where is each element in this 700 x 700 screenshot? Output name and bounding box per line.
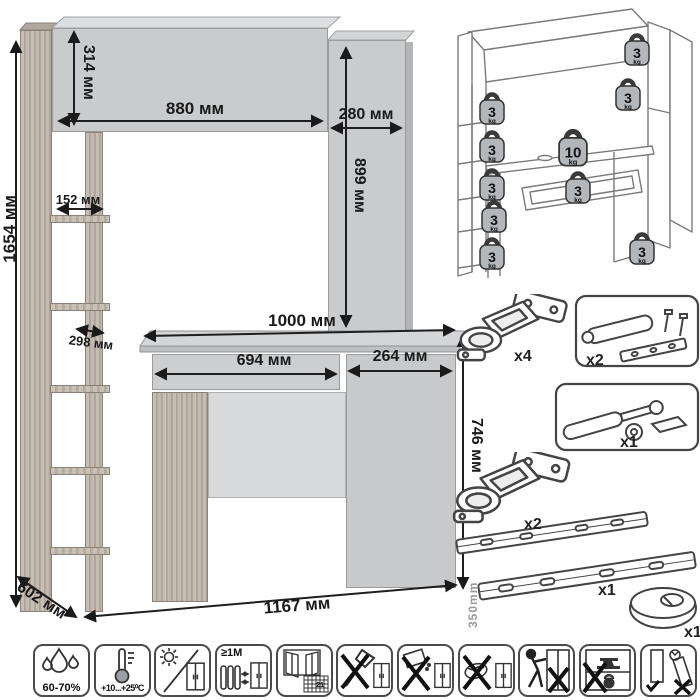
load-badge-pedestal: 3kg bbox=[627, 228, 657, 266]
svg-text:kg: kg bbox=[633, 59, 641, 66]
dim-total-height: 1654 мм bbox=[0, 195, 20, 263]
load-badge-desktop: 10kg bbox=[555, 124, 591, 168]
top-cabinet-top-face bbox=[328, 31, 414, 40]
slides-qty: x1 bbox=[598, 582, 616, 600]
hardware-hinge-1 bbox=[458, 290, 568, 360]
svg-text:kg: kg bbox=[488, 118, 496, 125]
no-overloading-icon bbox=[579, 644, 636, 697]
slash-line bbox=[164, 650, 198, 692]
svg-text:kg: kg bbox=[488, 263, 496, 270]
x-mark-icon bbox=[584, 663, 606, 692]
gas-lift-qty: x1 bbox=[620, 434, 638, 452]
grommet-qty: x1 bbox=[684, 624, 700, 642]
sun-icon bbox=[160, 648, 178, 666]
temperature-range: +10...+25⁰C bbox=[96, 683, 149, 694]
no-wet-cleaning-icon bbox=[458, 644, 515, 697]
sketch-open-door bbox=[670, 30, 692, 232]
load-badge-left-shelf-5: 3kg bbox=[477, 233, 507, 271]
ventilation-icon: 21 bbox=[276, 644, 333, 697]
humidity-icon: 60-70% bbox=[33, 644, 90, 697]
no-abrasives-icon bbox=[397, 644, 454, 697]
arrow-shelf-depth bbox=[77, 329, 103, 333]
dim-cabinet-height: 899 мм bbox=[350, 158, 368, 213]
x-mark-icon bbox=[675, 680, 690, 694]
kettlebell-icon bbox=[604, 675, 615, 688]
dim-hutch-height: 314 мм bbox=[79, 45, 97, 100]
distance-arrows-icon bbox=[242, 673, 248, 684]
wardrobe-icon bbox=[187, 663, 204, 690]
load-badge-left-shelf-1: 3kg bbox=[477, 88, 507, 126]
radiator-icon bbox=[221, 666, 240, 689]
x-mark-icon bbox=[342, 655, 368, 688]
dim-pedestal-width: 264 мм bbox=[364, 348, 436, 366]
dim-desk-height: 746 мм bbox=[467, 418, 485, 473]
hutch-top-face bbox=[52, 17, 340, 28]
wardrobe-icon bbox=[251, 663, 267, 688]
open-window-icon bbox=[284, 650, 320, 677]
load-badge-right-shelf: 3kg bbox=[613, 74, 643, 112]
svg-text:kg: kg bbox=[569, 158, 578, 167]
dim-desktop-width: 1000 мм bbox=[255, 311, 349, 331]
humidity-range: 60-70% bbox=[35, 682, 88, 694]
svg-text:kg: kg bbox=[638, 258, 646, 265]
wardrobe-icon bbox=[374, 664, 389, 688]
slides-length: 350mm bbox=[466, 566, 480, 628]
latch-qty: x2 bbox=[586, 352, 604, 370]
dim-shelf-width: 152 мм bbox=[52, 192, 104, 207]
calendar-day: 21 bbox=[316, 682, 324, 689]
svg-text:kg: kg bbox=[574, 197, 582, 204]
svg-text:kg: kg bbox=[624, 104, 632, 111]
svg-text:kg: kg bbox=[488, 156, 496, 163]
transport-upright-icon bbox=[640, 644, 697, 697]
furniture-assembly-sheet: 1654 мм 314 мм 880 мм 280 мм 899 мм 152 … bbox=[0, 0, 700, 700]
sketch-left-panel bbox=[458, 32, 472, 276]
left-panel-top-face bbox=[20, 23, 58, 30]
temperature-icon: +10...+25⁰C bbox=[94, 644, 151, 697]
no-sharp-tools-icon bbox=[336, 644, 393, 697]
dim-cabinet-width: 280 мм bbox=[330, 106, 402, 124]
load-badge-left-shelf-4: 3kg bbox=[479, 196, 509, 234]
load-badge-top-right: 3kg bbox=[622, 29, 652, 67]
hinge-1-qty: x4 bbox=[514, 348, 532, 366]
hardware-drawer-slides bbox=[456, 512, 696, 600]
load-badge-left-shelf-2: 3kg bbox=[477, 126, 507, 164]
min-distance: ≥1М bbox=[221, 647, 242, 659]
dim-drawer-width: 694 мм bbox=[218, 352, 310, 370]
dim-hutch-width: 880 мм bbox=[150, 99, 240, 119]
no-dragging-icon bbox=[518, 644, 575, 697]
person-icon bbox=[527, 650, 546, 687]
no-direct-sunlight-icon bbox=[154, 644, 211, 697]
wardrobe-icon bbox=[435, 664, 450, 688]
hinge-2-qty: x2 bbox=[524, 516, 542, 534]
wardrobe-icon bbox=[496, 664, 511, 688]
hardware-cable-grommet bbox=[630, 588, 696, 628]
heater-distance-icon: ≥1М bbox=[215, 644, 272, 697]
load-badge-drawer: 3kg bbox=[563, 167, 593, 205]
svg-text:kg: kg bbox=[490, 226, 498, 233]
